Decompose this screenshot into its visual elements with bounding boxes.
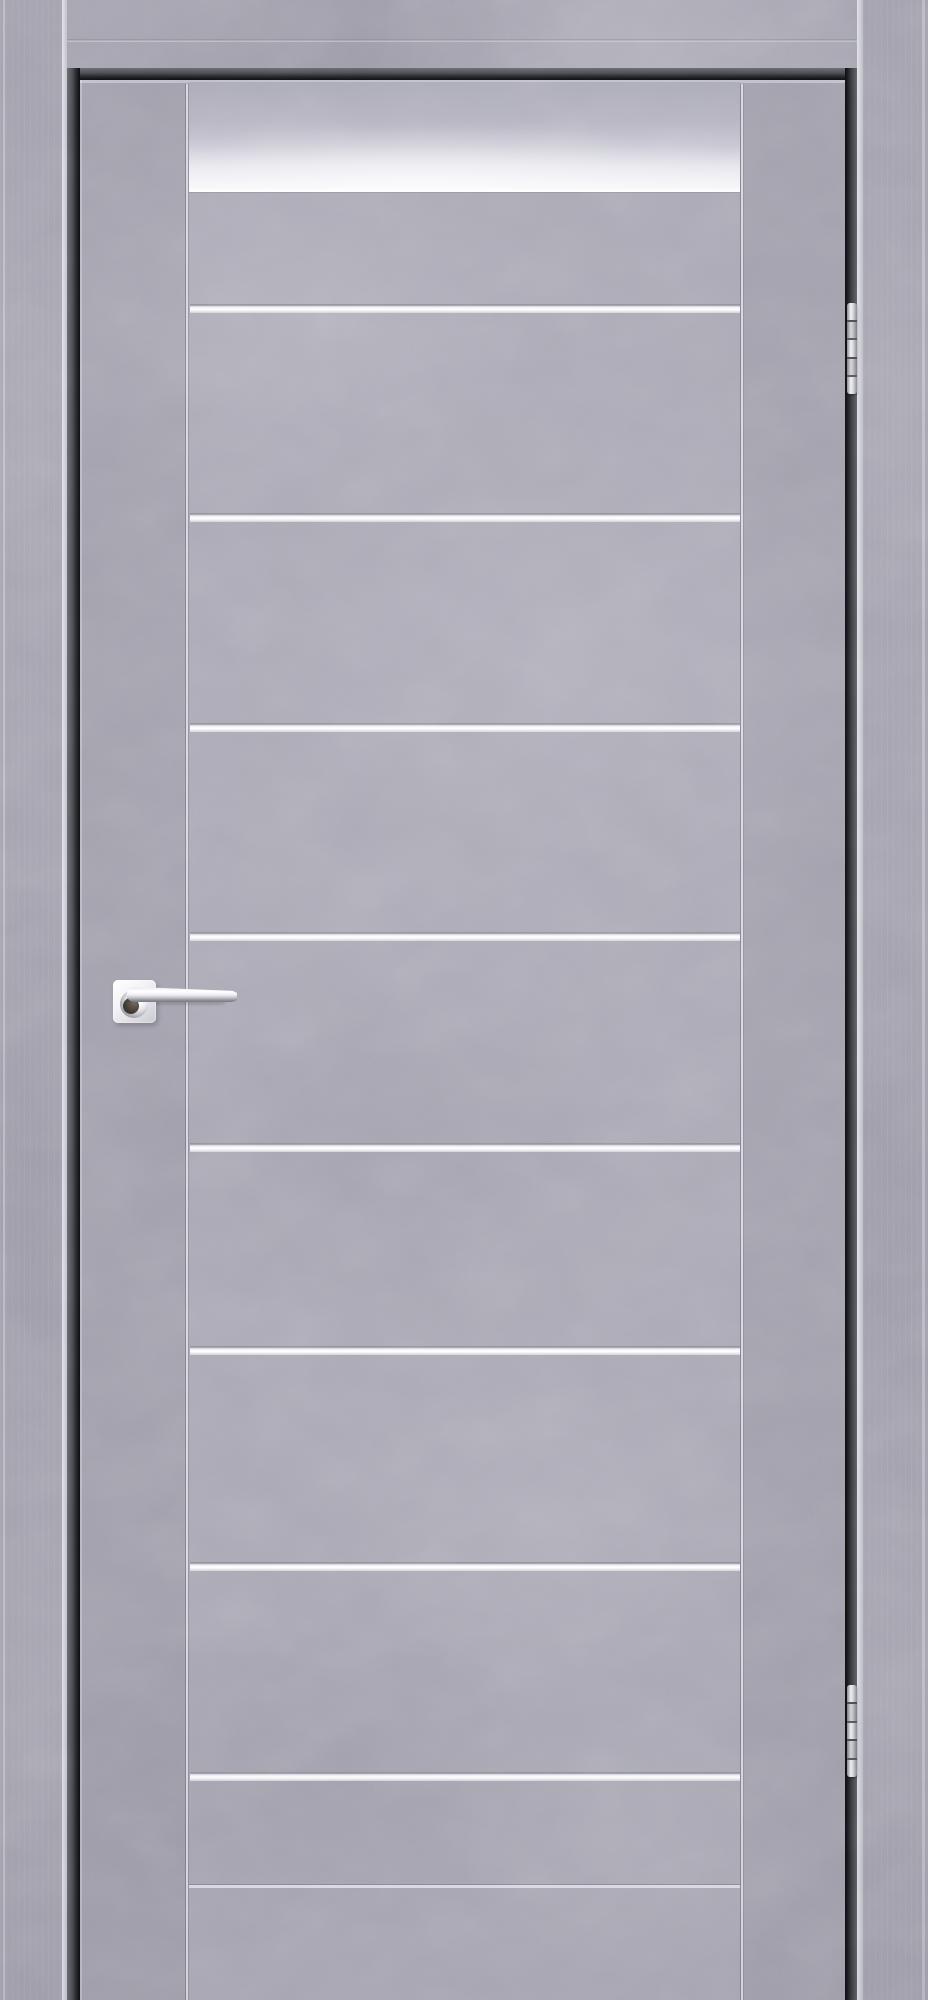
door-leaf-left-highlight (80, 80, 82, 2000)
aluminum-strip-2 (190, 513, 740, 522)
aluminum-strip-7 (190, 1562, 740, 1571)
frame-casing-head (67, 0, 857, 68)
casing-head-joint-line (67, 39, 857, 42)
hinge-knuckle (847, 375, 857, 394)
hinge-knuckle (847, 303, 857, 320)
hinge-knuckle (847, 1685, 857, 1702)
casing-inner-edge-right (857, 0, 863, 2000)
casing-edge-line-left (3, 0, 5, 2000)
casing-edge-line-right (922, 0, 925, 2000)
bottom-rail-groove (189, 1884, 740, 1888)
door-photo (0, 0, 928, 2000)
hinge-knuckle (847, 320, 857, 339)
hinge-knuckle (847, 357, 857, 376)
stile-groove-right (740, 84, 744, 2000)
hinge-bottom (847, 1685, 857, 1777)
aluminum-strip-3 (190, 723, 740, 732)
aluminum-strip-6 (190, 1346, 740, 1355)
stile-groove-left (185, 84, 189, 2000)
door-reveal-left (67, 68, 80, 2000)
frame-casing-left (0, 0, 63, 2000)
hinge-knuckle (847, 1702, 857, 1721)
door-center-panel (189, 84, 740, 2000)
hinge-knuckle (847, 1739, 857, 1758)
hinge-knuckle (847, 1758, 857, 1777)
frame-casing-right (863, 0, 928, 2000)
hinge-knuckle (847, 1721, 857, 1740)
aluminum-strip-4 (190, 932, 740, 941)
aluminum-strip-1 (190, 304, 740, 313)
hinge-top (847, 303, 857, 394)
hinge-knuckle (847, 338, 857, 357)
door-reveal-top (67, 68, 857, 80)
aluminum-strip-8 (190, 1772, 740, 1781)
frosted-glass-insert (189, 82, 740, 193)
aluminum-strip-5 (190, 1143, 740, 1152)
